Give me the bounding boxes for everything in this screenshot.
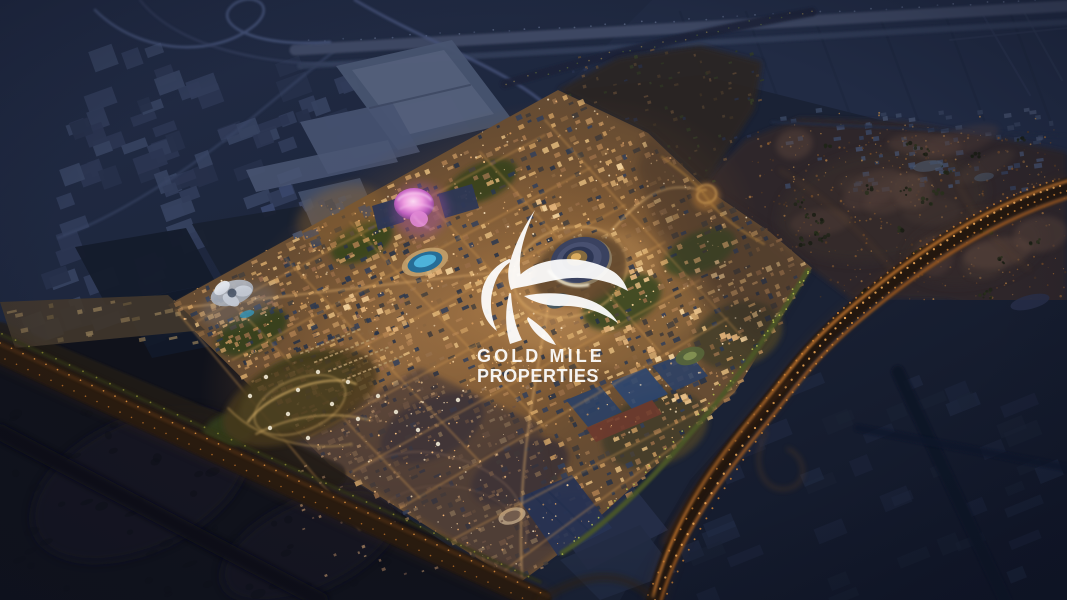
svg-text:GOLD MILE: GOLD MILE (477, 346, 605, 366)
svg-text:PROPERTIES: PROPERTIES (477, 366, 599, 386)
